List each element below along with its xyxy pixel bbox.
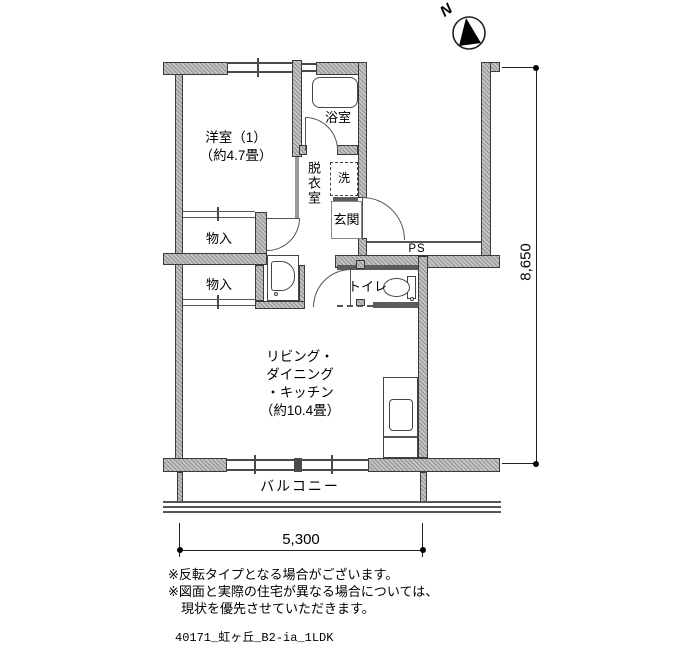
wall-top-left	[163, 62, 228, 75]
toilet-drain	[410, 297, 414, 301]
wall-middle-left	[163, 253, 267, 265]
north-arrow-icon	[445, 10, 497, 58]
toilet-bowl	[383, 278, 410, 297]
bathtub	[312, 77, 358, 108]
label-dressing-room: 脱衣室	[305, 161, 321, 206]
dim-right-dot-top	[533, 65, 539, 71]
wall-toilet-south	[373, 302, 418, 308]
closet-upper-sliding-door	[183, 211, 255, 218]
balcony-rail-line-2	[163, 506, 501, 508]
dim-right-tick-bottom	[502, 463, 536, 464]
door-arc-toilet	[313, 269, 351, 307]
label-ldk-line4: （約10.4畳）	[240, 402, 360, 420]
balcony-rail-line-1	[163, 501, 501, 503]
washbasin-drain	[274, 292, 278, 296]
label-storage-upper: 物入	[183, 231, 255, 247]
label-ldk-line2: ダイニング	[240, 366, 360, 384]
dim-right-line	[536, 68, 537, 464]
closet-lower-sliding-door	[183, 299, 255, 306]
dim-bottom-dot-right	[420, 547, 426, 553]
window-top-tick	[257, 58, 259, 77]
jamb-dressing-west	[295, 157, 299, 218]
balcony-rail-line-3	[163, 511, 501, 513]
label-toilet: トイレ	[348, 279, 386, 295]
wall-outer-right	[481, 62, 491, 258]
floor-plan: N	[0, 0, 700, 650]
kitchen-sink	[389, 399, 413, 431]
label-storage-lower: 物入	[183, 277, 255, 293]
dim-bottom-dot-left	[177, 547, 183, 553]
label-western-room-size: （約4.7畳）	[176, 148, 296, 164]
label-ldk-line3: ・キッチン	[240, 384, 360, 402]
dim-bottom-value: 5,300	[241, 531, 361, 548]
balcony-window-tick-right	[331, 455, 333, 474]
label-pipe-space: PS	[404, 241, 430, 257]
wall-entry-east	[358, 62, 367, 198]
wall-closet-column-upper	[255, 212, 267, 254]
window-top	[228, 62, 292, 73]
label-bath: 浴室	[314, 110, 362, 126]
label-laundry: 洗	[330, 171, 358, 185]
closet-upper-tick	[217, 207, 219, 221]
balcony-post-right	[420, 472, 427, 503]
wall-ldk-right	[418, 256, 428, 458]
label-ldk: リビング・ ダイニング ・キッチン （約10.4畳）	[240, 348, 360, 420]
closet-lower-tick	[217, 295, 219, 309]
balcony-window-mullion	[294, 458, 302, 472]
label-ldk-line1: リビング・	[240, 348, 360, 366]
balcony-post-left	[177, 472, 183, 503]
label-entrance: 玄関	[331, 212, 362, 228]
window-bath	[302, 63, 316, 72]
wall-closet-column-lower	[255, 265, 264, 301]
file-label: 40171_虹ヶ丘_B2-ia_1LDK	[175, 628, 333, 645]
door-arc-entrance	[362, 197, 405, 240]
wall-bottom-right	[368, 458, 500, 472]
note-line-2: ※図面と実際の住宅が異なる場合については、	[168, 584, 438, 600]
dim-right-tick-top	[502, 67, 536, 68]
dim-right-value: 8,650	[518, 243, 535, 281]
balcony-window-tick-left	[254, 455, 256, 474]
jamb-toilet-north	[356, 260, 365, 269]
wall-bottom-left	[163, 458, 227, 472]
dim-bottom-line	[180, 550, 423, 551]
dim-right-dot-bottom	[533, 461, 539, 467]
kitchen-counter-divider	[384, 436, 417, 438]
note-line-3: 現状を優先させていただきます。	[181, 601, 375, 617]
door-arc-bedroom	[267, 218, 300, 251]
label-balcony: バルコニー	[250, 478, 350, 494]
wall-bath-south-right	[337, 145, 358, 155]
wall-washbasin-bottom	[255, 301, 305, 309]
label-western-room: 洋室（1）	[176, 130, 296, 146]
note-line-1: ※反転タイプとなる場合がございます。	[168, 567, 398, 583]
